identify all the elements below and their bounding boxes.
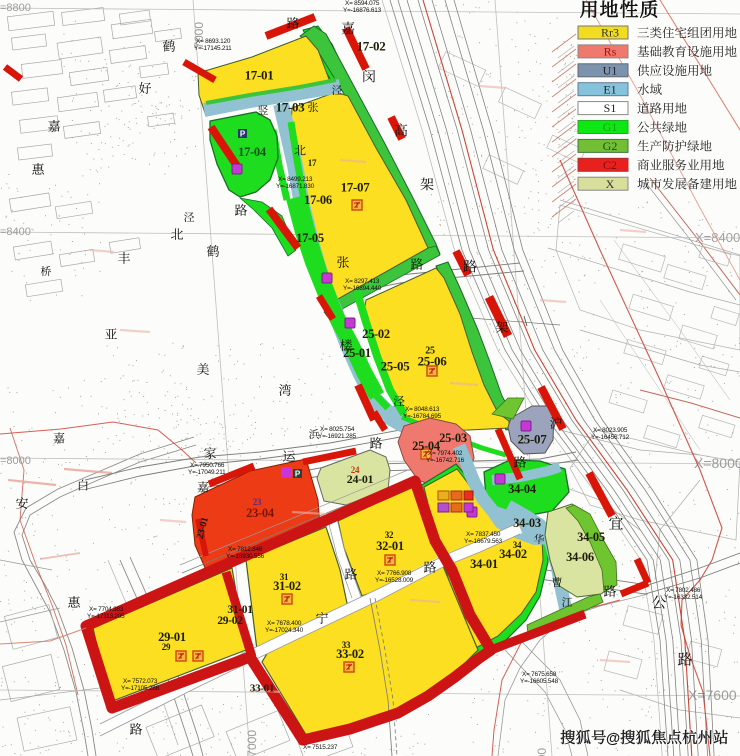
svg-text:Y=-16605.548: Y=-16605.548 — [520, 678, 559, 685]
svg-text:17-07: 17-07 — [341, 179, 371, 194]
svg-text:Y=-16784.695: Y=-16784.695 — [403, 413, 442, 420]
svg-text:E1: E1 — [603, 82, 616, 96]
svg-text:17-03: 17-03 — [276, 99, 306, 114]
svg-text:29-02: 29-02 — [217, 615, 243, 627]
svg-text:=8400: =8400 — [0, 226, 31, 238]
svg-text:X: X — [606, 177, 615, 191]
svg-text:Y=-16871.830: Y=-16871.830 — [276, 183, 315, 190]
svg-text:X= 7515.237: X= 7515.237 — [303, 744, 338, 751]
svg-text:=8800: =8800 — [0, 2, 31, 14]
svg-text:@: @ — [606, 731, 620, 747]
svg-text:Y=-16332.514: Y=-16332.514 — [664, 594, 703, 601]
svg-text:Y=-17105.288: Y=-17105.288 — [121, 685, 160, 692]
svg-text:33-01: 33-01 — [250, 683, 274, 695]
svg-text:23-04: 23-04 — [246, 506, 275, 520]
svg-text:34-01: 34-01 — [470, 557, 498, 571]
svg-text:P: P — [295, 470, 301, 479]
svg-text:Y=-16894.440: Y=-16894.440 — [343, 285, 382, 292]
svg-text:23: 23 — [253, 497, 262, 507]
svg-text:17-06: 17-06 — [304, 193, 332, 207]
svg-text:25-06: 25-06 — [418, 353, 448, 368]
svg-text:Y=-17049.211: Y=-17049.211 — [188, 469, 226, 476]
svg-text:17: 17 — [308, 158, 317, 168]
svg-text:G2: G2 — [603, 139, 618, 153]
svg-text:=-16500: =-16500 — [535, 748, 549, 756]
svg-text:Y=-17024.340: Y=-17024.340 — [265, 627, 304, 634]
svg-text:24: 24 — [351, 465, 360, 475]
svg-text:17-02: 17-02 — [357, 38, 386, 53]
svg-text:34-04: 34-04 — [508, 482, 537, 496]
svg-text:X=8400: X=8400 — [695, 230, 740, 245]
svg-text:25-07: 25-07 — [518, 431, 548, 446]
svg-text:Rr3: Rr3 — [601, 26, 619, 40]
svg-text:25-01: 25-01 — [343, 346, 371, 360]
svg-text:=-17000: =-17000 — [245, 730, 259, 756]
svg-text:17-01: 17-01 — [245, 67, 274, 82]
svg-text:25-05: 25-05 — [381, 358, 411, 373]
svg-text:Y=-16679.563: Y=-16679.563 — [464, 538, 503, 545]
svg-text:34: 34 — [513, 540, 522, 550]
svg-text:34-05: 34-05 — [577, 530, 605, 544]
svg-text:34-03: 34-03 — [513, 516, 541, 530]
svg-text:32: 32 — [385, 530, 394, 540]
svg-text:32-01: 32-01 — [376, 539, 404, 553]
svg-text:Y=-16742.716: Y=-16742.716 — [426, 457, 465, 464]
svg-text:33: 33 — [342, 640, 351, 650]
svg-text:Rs: Rs — [604, 45, 617, 59]
svg-text:17-05: 17-05 — [296, 231, 324, 245]
svg-text:Y=-16528.009: Y=-16528.009 — [375, 577, 414, 584]
svg-text:31-01: 31-01 — [227, 604, 253, 616]
svg-text:Y=-16876.613: Y=-16876.613 — [343, 7, 382, 14]
svg-text:P: P — [240, 130, 246, 139]
svg-text:29: 29 — [162, 642, 171, 652]
svg-text:Y=-17145.211: Y=-17145.211 — [194, 45, 232, 52]
svg-text:C2: C2 — [603, 158, 617, 172]
svg-text:S1: S1 — [604, 101, 617, 115]
svg-text:Y=-16456.712: Y=-16456.712 — [591, 434, 630, 441]
svg-text:=8000: =8000 — [0, 455, 31, 467]
svg-text:Y=-16921.285: Y=-16921.285 — [318, 433, 357, 440]
svg-text:25-03: 25-03 — [439, 431, 467, 445]
svg-text:31: 31 — [280, 572, 289, 582]
svg-text:U1: U1 — [603, 63, 618, 77]
svg-text:Y=-16930.556: Y=-16930.556 — [226, 553, 265, 560]
svg-text:34-06: 34-06 — [566, 550, 594, 564]
svg-text:25-02: 25-02 — [362, 327, 390, 341]
svg-text:G1: G1 — [603, 120, 618, 134]
svg-text:Y=-17113.205: Y=-17113.205 — [87, 613, 125, 620]
svg-text:X=8000: X=8000 — [694, 455, 740, 471]
svg-text:17-04: 17-04 — [238, 145, 267, 159]
